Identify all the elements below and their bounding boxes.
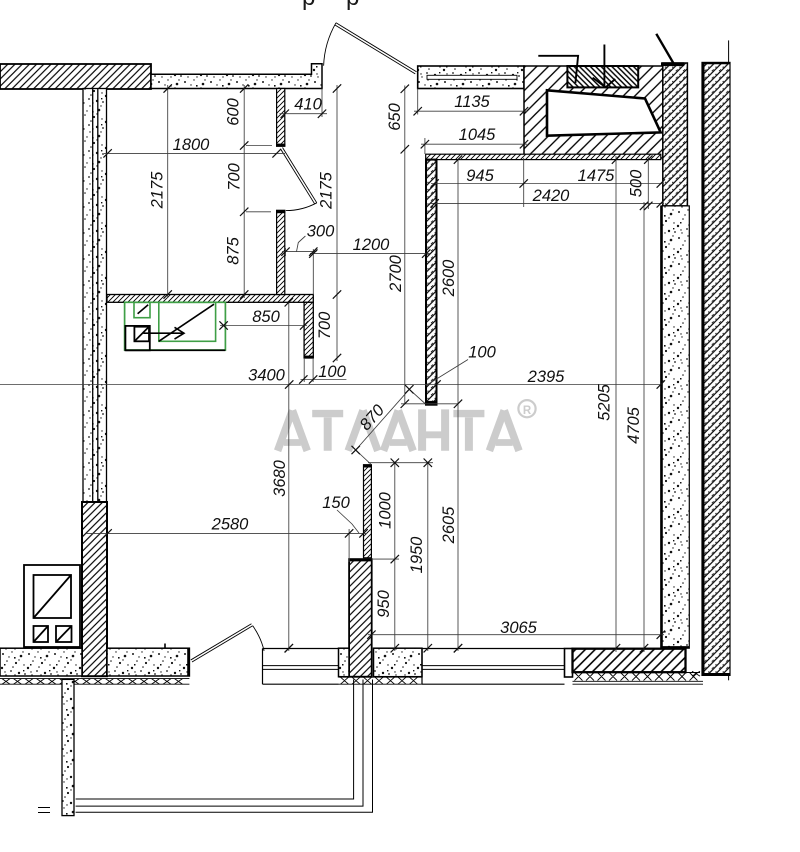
svg-text:1475: 1475 bbox=[578, 167, 616, 185]
svg-text:3400: 3400 bbox=[248, 367, 286, 385]
svg-text:2600: 2600 bbox=[440, 259, 458, 298]
svg-text:875: 875 bbox=[225, 236, 243, 264]
svg-text:1800: 1800 bbox=[173, 136, 211, 154]
svg-text:3065: 3065 bbox=[500, 619, 538, 637]
svg-text:950: 950 bbox=[375, 589, 393, 617]
svg-text:1000: 1000 bbox=[377, 491, 395, 529]
svg-text:700: 700 bbox=[226, 162, 244, 190]
svg-text:2420: 2420 bbox=[532, 187, 571, 205]
svg-text:R: R bbox=[523, 405, 532, 417]
svg-text:150: 150 bbox=[322, 494, 350, 512]
svg-text:2580: 2580 bbox=[211, 516, 250, 534]
svg-text:700: 700 bbox=[316, 311, 334, 339]
svg-text:1045: 1045 bbox=[459, 126, 497, 144]
svg-text:2175: 2175 bbox=[149, 171, 167, 210]
svg-text:1135: 1135 bbox=[454, 93, 490, 111]
svg-text:1950: 1950 bbox=[408, 536, 426, 574]
svg-text:300: 300 bbox=[307, 223, 335, 241]
svg-text:410: 410 bbox=[294, 96, 322, 114]
svg-text:2395: 2395 bbox=[527, 368, 566, 386]
svg-text:4705: 4705 bbox=[625, 406, 643, 444]
svg-text:5205: 5205 bbox=[596, 383, 614, 421]
svg-text:р: р bbox=[302, 0, 315, 11]
svg-text:3680: 3680 bbox=[271, 459, 289, 497]
svg-text:600: 600 bbox=[225, 97, 243, 125]
svg-text:2700: 2700 bbox=[387, 254, 405, 293]
svg-text:100: 100 bbox=[318, 363, 346, 381]
svg-text:945: 945 bbox=[466, 167, 494, 185]
svg-text:1200: 1200 bbox=[353, 236, 391, 254]
svg-text:850: 850 bbox=[252, 308, 280, 326]
svg-text:2605: 2605 bbox=[440, 506, 458, 545]
svg-text:2175: 2175 bbox=[318, 171, 336, 210]
svg-text:500: 500 bbox=[628, 169, 646, 197]
svg-text:650: 650 bbox=[386, 102, 404, 130]
svg-text:р: р bbox=[346, 0, 359, 11]
svg-text:100: 100 bbox=[468, 344, 496, 362]
